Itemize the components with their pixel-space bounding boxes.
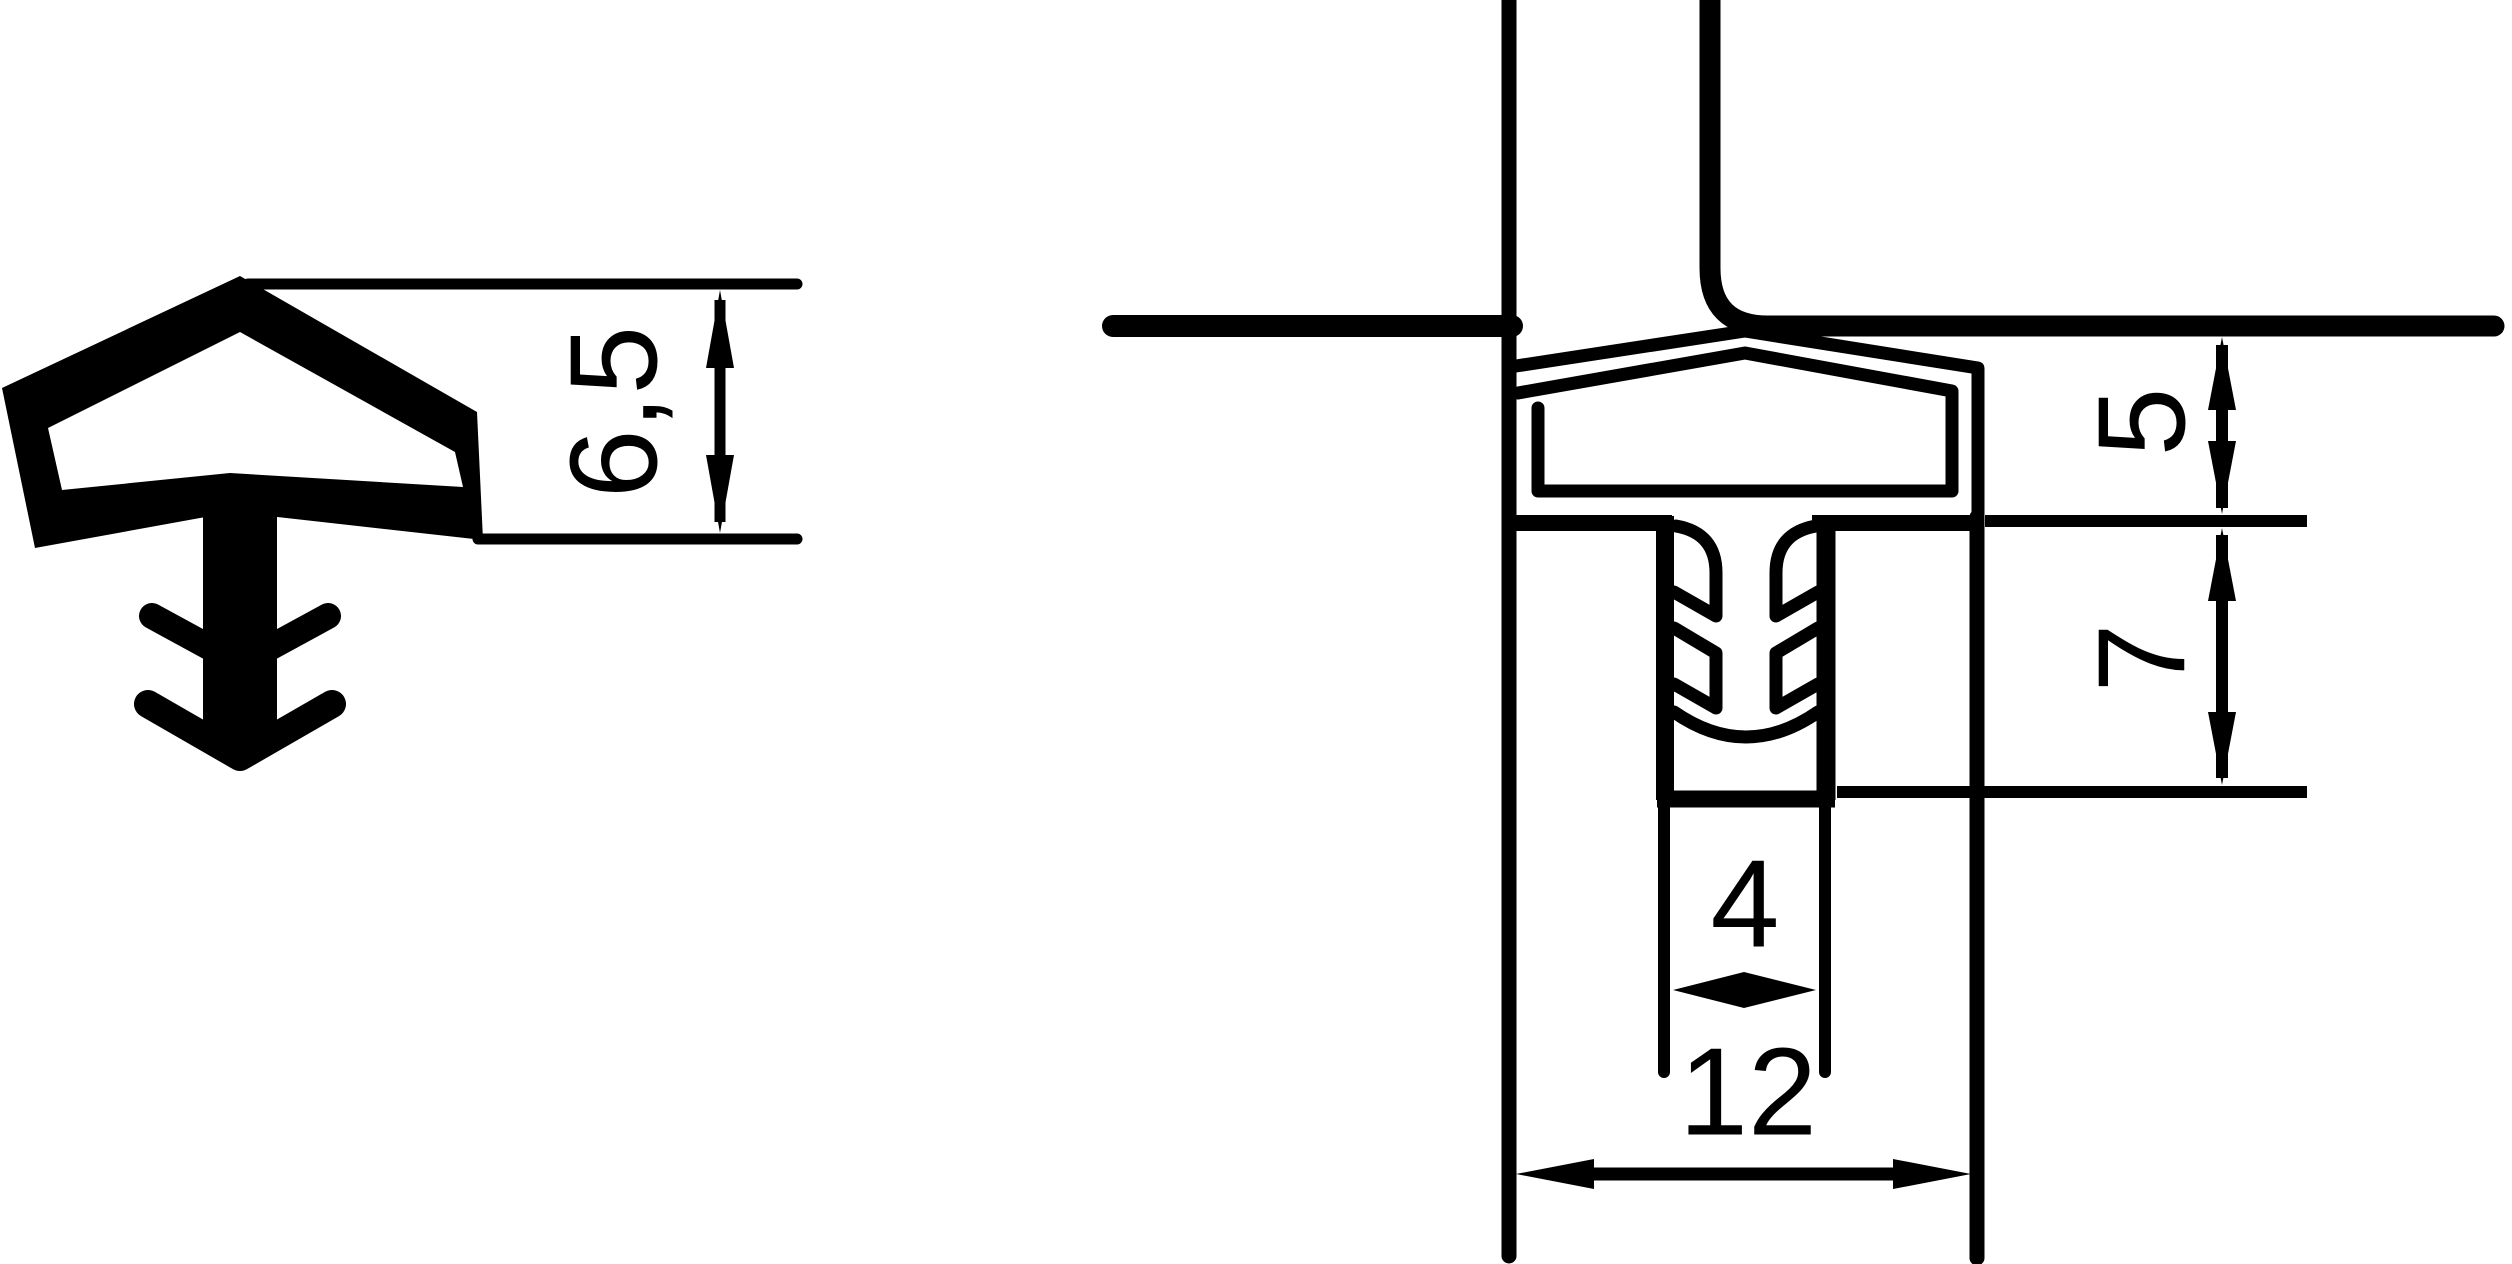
dimension-12: 12 <box>1516 1023 1971 1189</box>
fir-tree-barb-left <box>1674 628 1716 708</box>
profile-stem <box>203 505 277 748</box>
fir-tree-hook-right <box>1776 526 1818 616</box>
fir-tree-hook-left <box>1674 526 1716 616</box>
dimension-7-label: 7 <box>2073 624 2211 693</box>
arrowhead-up-icon <box>2208 337 2236 410</box>
seal-stem-fir-tree <box>1674 526 1818 737</box>
arrowhead-left-icon <box>1516 1159 1594 1189</box>
dimension-4: 4 <box>1673 835 1816 1008</box>
fir-tree-barb-right <box>1776 628 1818 708</box>
arrowhead-down-icon <box>2208 441 2236 514</box>
dimension-5: 5 <box>2073 337 2236 514</box>
arrowhead-up-icon <box>706 290 734 368</box>
seal-profile-section-view: 6,5 <box>2 276 797 757</box>
cad-drawing-canvas: 6,5 <box>0 0 2512 1264</box>
seal-installed-view: 5 7 4 12 <box>1113 0 2494 1258</box>
seal-head-inner-line <box>1518 353 1952 491</box>
dimension-7: 7 <box>2073 528 2236 785</box>
double-arrowhead-icon <box>1673 972 1816 1008</box>
dimension-6-5-label: 6,5 <box>545 326 683 498</box>
dimension-4-label: 4 <box>1711 835 1780 973</box>
arrowhead-right-icon <box>1893 1159 1971 1189</box>
arrowhead-down-icon <box>706 455 734 533</box>
dimension-5-label: 5 <box>2073 388 2211 457</box>
frame-corner-line <box>1710 0 2494 326</box>
technical-drawing-page: 6,5 <box>0 0 2512 1264</box>
arrowhead-up-icon <box>2208 528 2236 601</box>
fir-tree-bottom-curve <box>1674 712 1818 737</box>
dimension-12-label: 12 <box>1679 1023 1817 1161</box>
arrowhead-down-icon <box>2208 712 2236 785</box>
